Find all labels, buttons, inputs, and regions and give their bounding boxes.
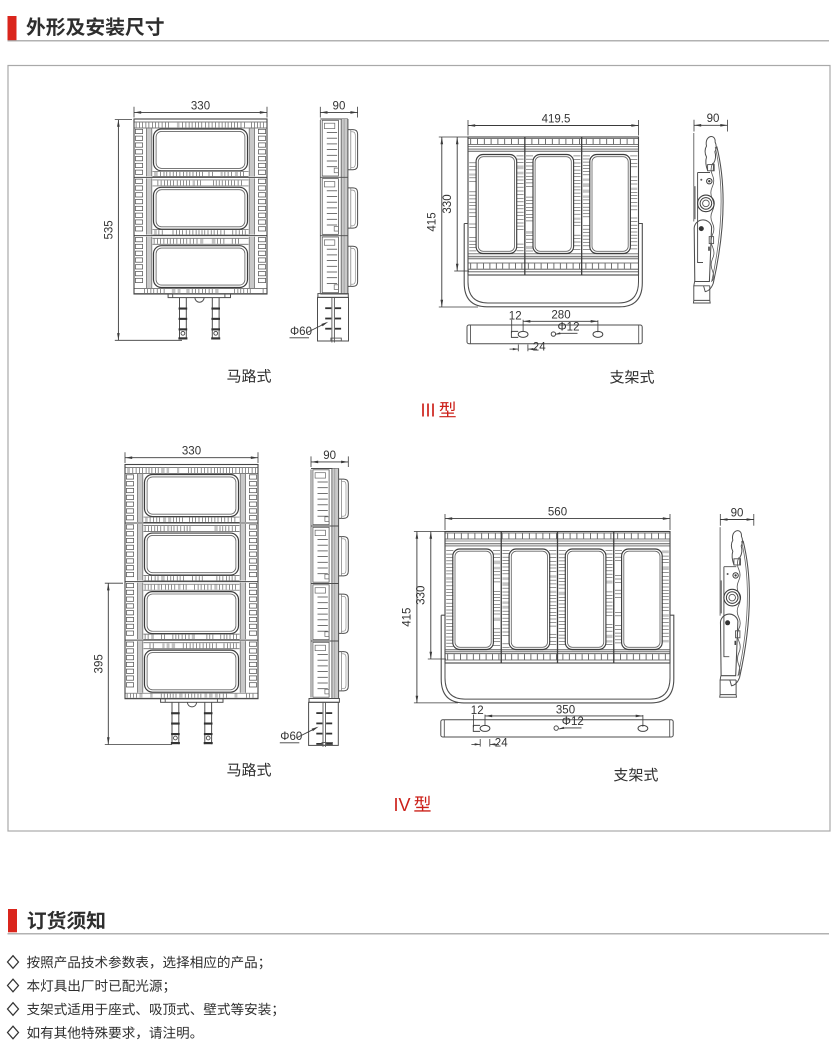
svg-text:90: 90 xyxy=(707,113,720,125)
svg-text:419.5: 419.5 xyxy=(542,113,571,125)
svg-text:90: 90 xyxy=(731,507,744,519)
svg-text:90: 90 xyxy=(323,450,336,462)
svg-text:560: 560 xyxy=(548,507,567,519)
svg-text:415: 415 xyxy=(402,608,414,627)
svg-text:395: 395 xyxy=(93,654,105,673)
svg-text:330: 330 xyxy=(191,100,210,112)
svg-text:III: III xyxy=(421,401,436,421)
svg-text:12: 12 xyxy=(509,310,522,322)
svg-text:12: 12 xyxy=(471,705,484,717)
svg-text:535: 535 xyxy=(104,220,116,239)
svg-text:24: 24 xyxy=(533,342,546,354)
svg-text:280: 280 xyxy=(551,310,570,322)
svg-text:90: 90 xyxy=(333,100,346,112)
svg-text:Φ12: Φ12 xyxy=(562,716,584,728)
svg-text:350: 350 xyxy=(556,704,575,716)
svg-text:IV: IV xyxy=(394,795,411,815)
svg-text:24: 24 xyxy=(495,737,508,749)
svg-text:330: 330 xyxy=(416,586,428,605)
svg-text:415: 415 xyxy=(427,212,439,231)
svg-text:330: 330 xyxy=(442,194,454,213)
svg-text:Φ12: Φ12 xyxy=(558,321,580,333)
svg-text:330: 330 xyxy=(182,446,201,458)
